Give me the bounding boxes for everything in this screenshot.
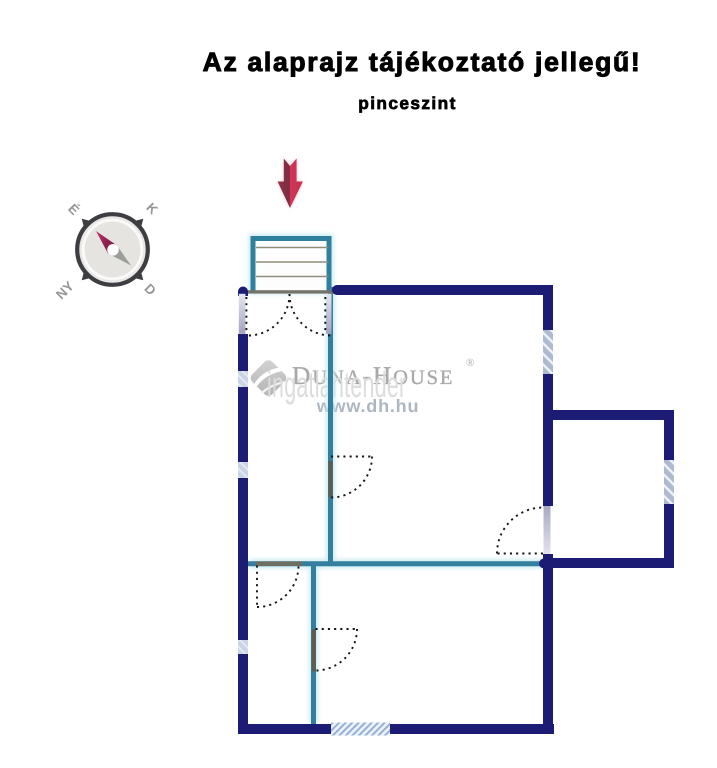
svg-text:Az alaprajz tájékoztató jelleg: Az alaprajz tájékoztató jellegű! (203, 47, 642, 77)
svg-text:pinceszint: pinceszint (358, 93, 457, 113)
svg-text:®: ® (466, 357, 474, 369)
